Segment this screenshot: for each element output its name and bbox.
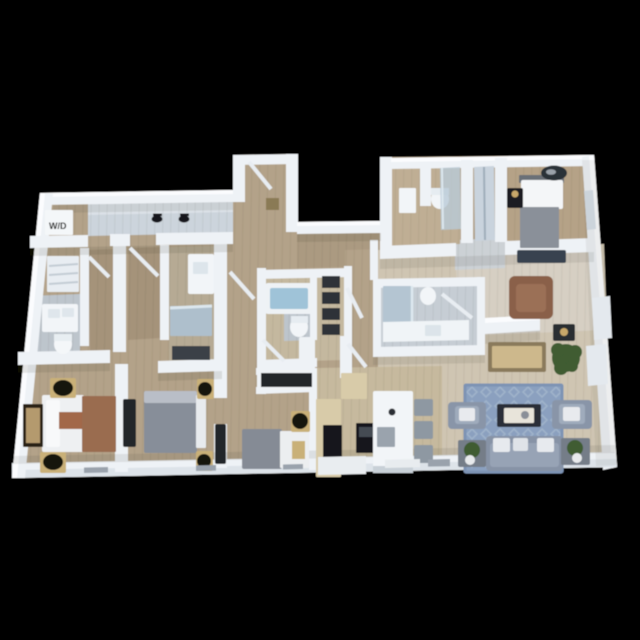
svg-text:W/D: W/D [49, 221, 67, 231]
